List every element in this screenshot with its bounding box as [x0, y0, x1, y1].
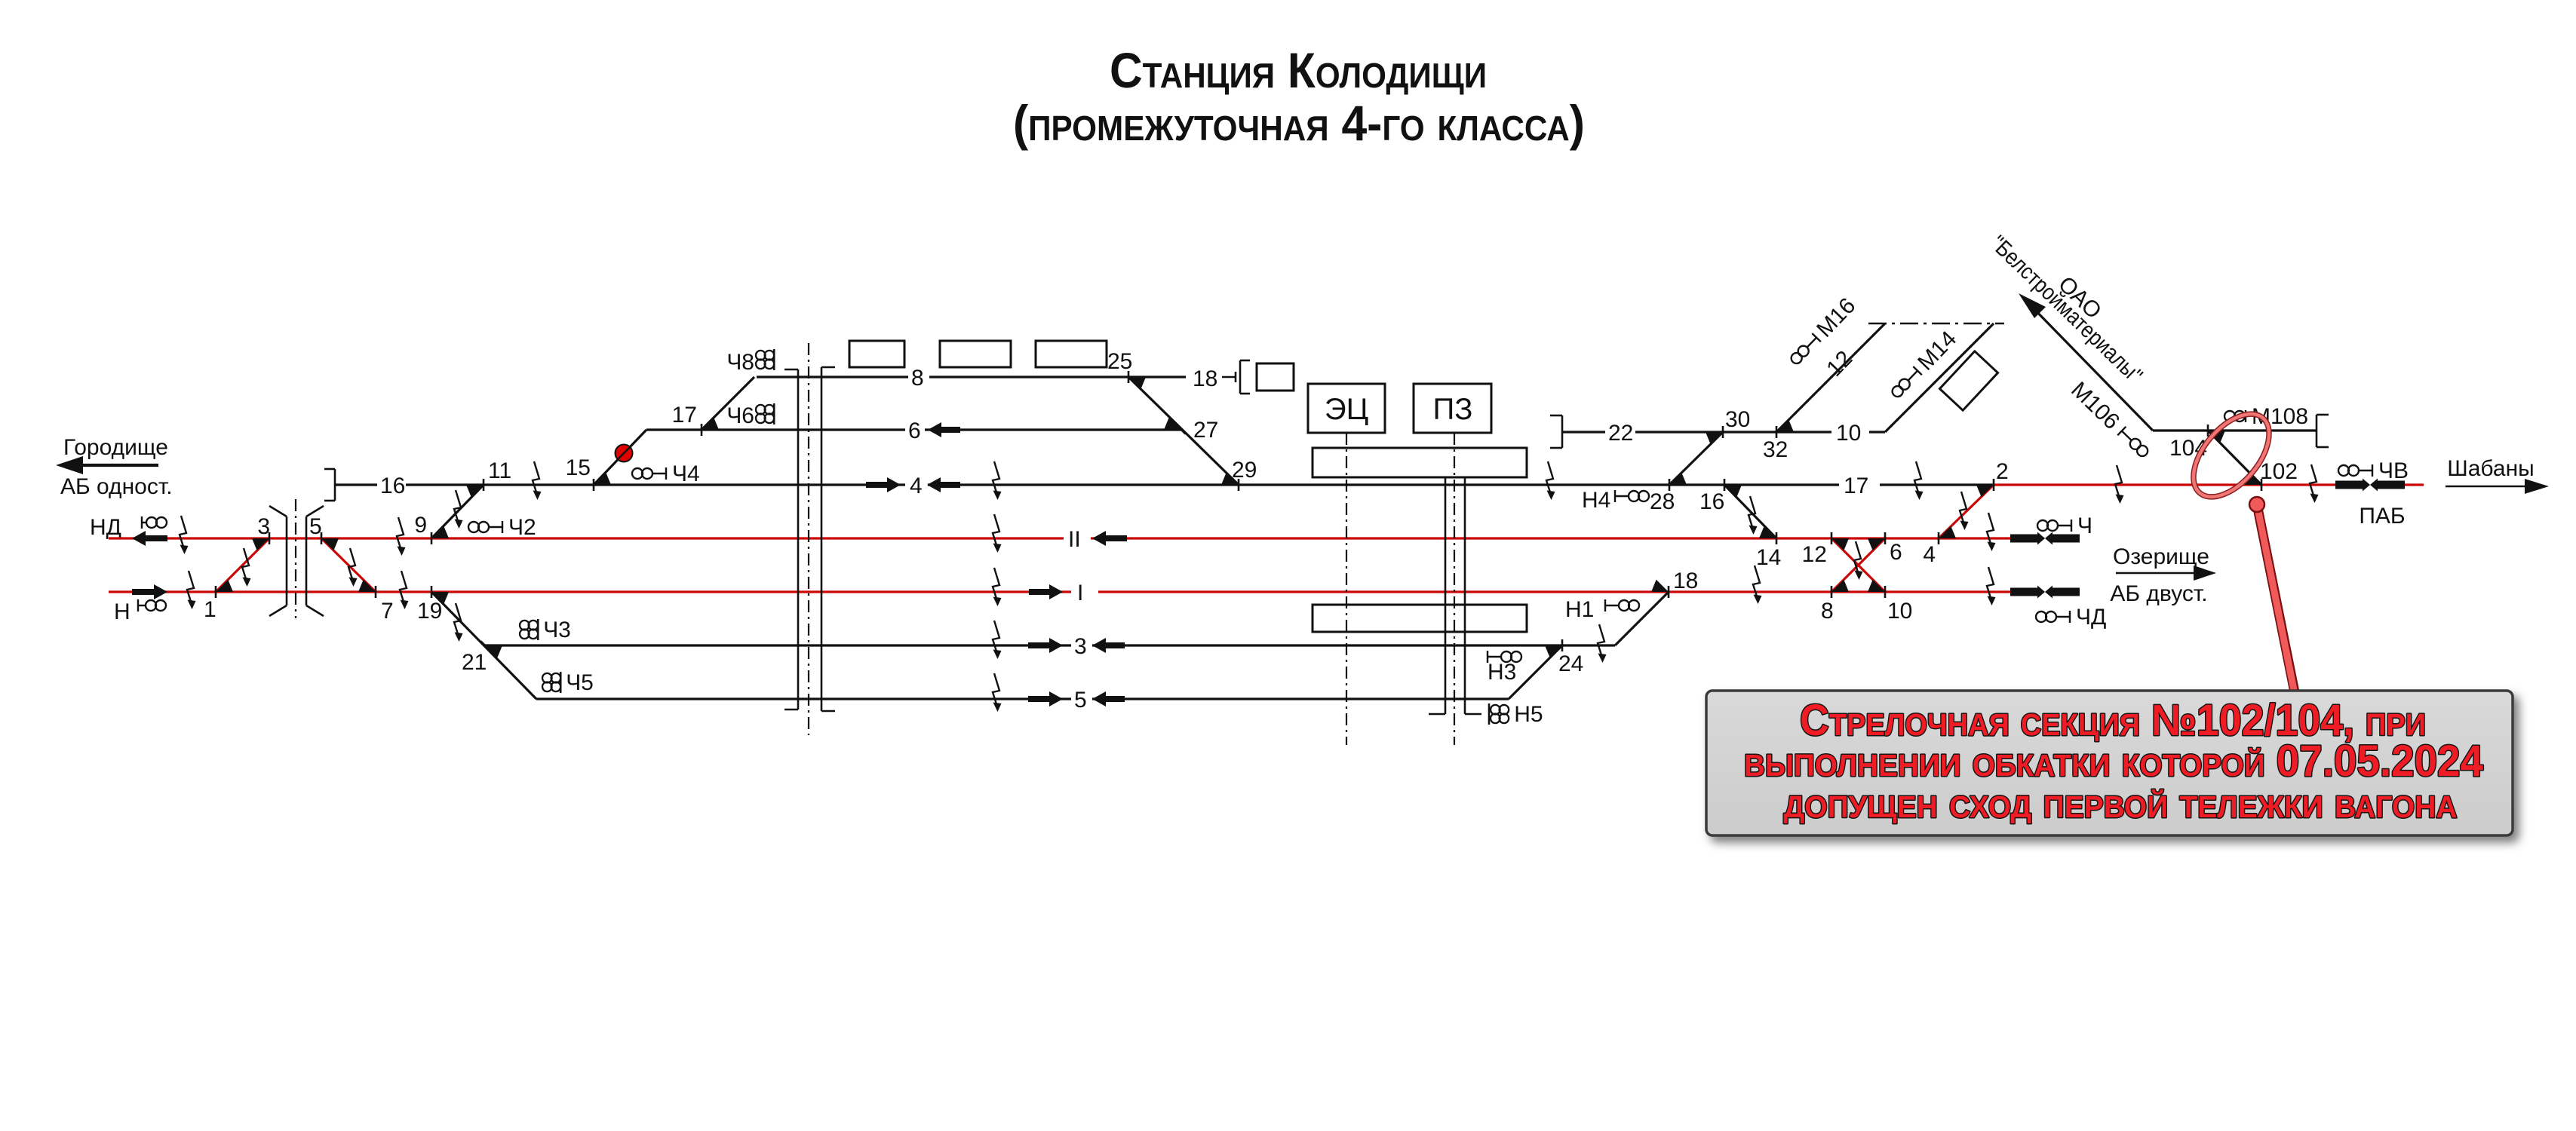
- svg-text:ЭЦ: ЭЦ: [1325, 393, 1368, 426]
- svg-text:16: 16: [1699, 489, 1724, 514]
- svg-text:3: 3: [257, 514, 270, 539]
- svg-text:4: 4: [1923, 542, 1936, 567]
- svg-text:ЧД: ЧД: [2076, 605, 2106, 630]
- svg-text:Н1: Н1: [1565, 597, 1594, 622]
- svg-text:18: 18: [1193, 366, 1217, 391]
- svg-text:29: 29: [1232, 458, 1257, 483]
- svg-text:Ч3: Ч3: [543, 618, 571, 642]
- svg-text:АБ одност.: АБ одност.: [60, 474, 173, 499]
- svg-text:ЧВ: ЧВ: [2378, 458, 2409, 483]
- svg-text:17: 17: [672, 403, 697, 428]
- svg-text:ПАБ: ПАБ: [2359, 504, 2405, 529]
- svg-text:28: 28: [1650, 489, 1675, 514]
- svg-text:24: 24: [1558, 651, 1583, 676]
- svg-text:5: 5: [309, 514, 322, 539]
- svg-text:21: 21: [462, 650, 487, 675]
- svg-text:25: 25: [1107, 349, 1132, 374]
- svg-text:2: 2: [1996, 459, 2009, 484]
- svg-text:17: 17: [1844, 474, 1868, 498]
- svg-text:11: 11: [488, 458, 511, 483]
- svg-text:22: 22: [1608, 421, 1633, 446]
- svg-text:6: 6: [908, 418, 921, 443]
- svg-text:6: 6: [1890, 540, 1902, 565]
- svg-text:(промежуточная 4-го класса): (промежуточная 4-го класса): [1013, 95, 1585, 151]
- svg-text:Ч8: Ч8: [726, 350, 754, 375]
- svg-text:18: 18: [1673, 569, 1698, 593]
- svg-text:27: 27: [1193, 418, 1218, 443]
- svg-text:12: 12: [1802, 542, 1827, 567]
- svg-text:10: 10: [1887, 599, 1912, 624]
- svg-text:4: 4: [910, 474, 923, 498]
- svg-text:15: 15: [566, 455, 591, 480]
- svg-text:Озерище: Озерище: [2113, 544, 2209, 569]
- svg-text:1: 1: [204, 597, 216, 622]
- svg-text:10: 10: [1836, 421, 1861, 446]
- svg-text:3: 3: [1074, 634, 1087, 659]
- svg-text:8: 8: [911, 366, 924, 391]
- svg-text:32: 32: [1763, 437, 1788, 462]
- svg-text:Станция Колодищи: Станция Колодищи: [1110, 42, 1487, 98]
- svg-text:5: 5: [1074, 688, 1087, 713]
- svg-text:9: 9: [414, 513, 427, 538]
- svg-text:Ч6: Ч6: [726, 403, 754, 428]
- svg-text:Н5: Н5: [1514, 702, 1543, 727]
- svg-text:Н: Н: [114, 599, 130, 624]
- svg-text:14: 14: [1756, 545, 1781, 570]
- svg-text:Ч5: Ч5: [566, 670, 594, 695]
- svg-text:Ч4: Ч4: [672, 461, 700, 486]
- svg-text:Ч2: Ч2: [508, 515, 536, 540]
- svg-text:НД: НД: [90, 515, 121, 540]
- svg-text:Н4: Н4: [1582, 488, 1610, 513]
- svg-text:допущен сход первой тележки ва: допущен сход первой тележки вагона: [1784, 778, 2458, 827]
- svg-text:30: 30: [1725, 407, 1750, 432]
- svg-text:Шабаны: Шабаны: [2447, 456, 2535, 481]
- svg-text:Н3: Н3: [1488, 660, 1516, 685]
- svg-text:7: 7: [381, 599, 394, 624]
- svg-text:102: 102: [2260, 459, 2298, 484]
- svg-text:16: 16: [380, 474, 405, 498]
- svg-text:8: 8: [1821, 599, 1834, 624]
- svg-text:II: II: [1068, 527, 1081, 552]
- svg-text:АБ двуст.: АБ двуст.: [2110, 581, 2207, 606]
- svg-text:Городище: Городище: [63, 435, 168, 460]
- svg-text:I: I: [1077, 581, 1083, 605]
- svg-text:19: 19: [417, 599, 442, 624]
- svg-text:Ч: Ч: [2077, 513, 2092, 538]
- svg-text:ПЗ: ПЗ: [1433, 393, 1473, 426]
